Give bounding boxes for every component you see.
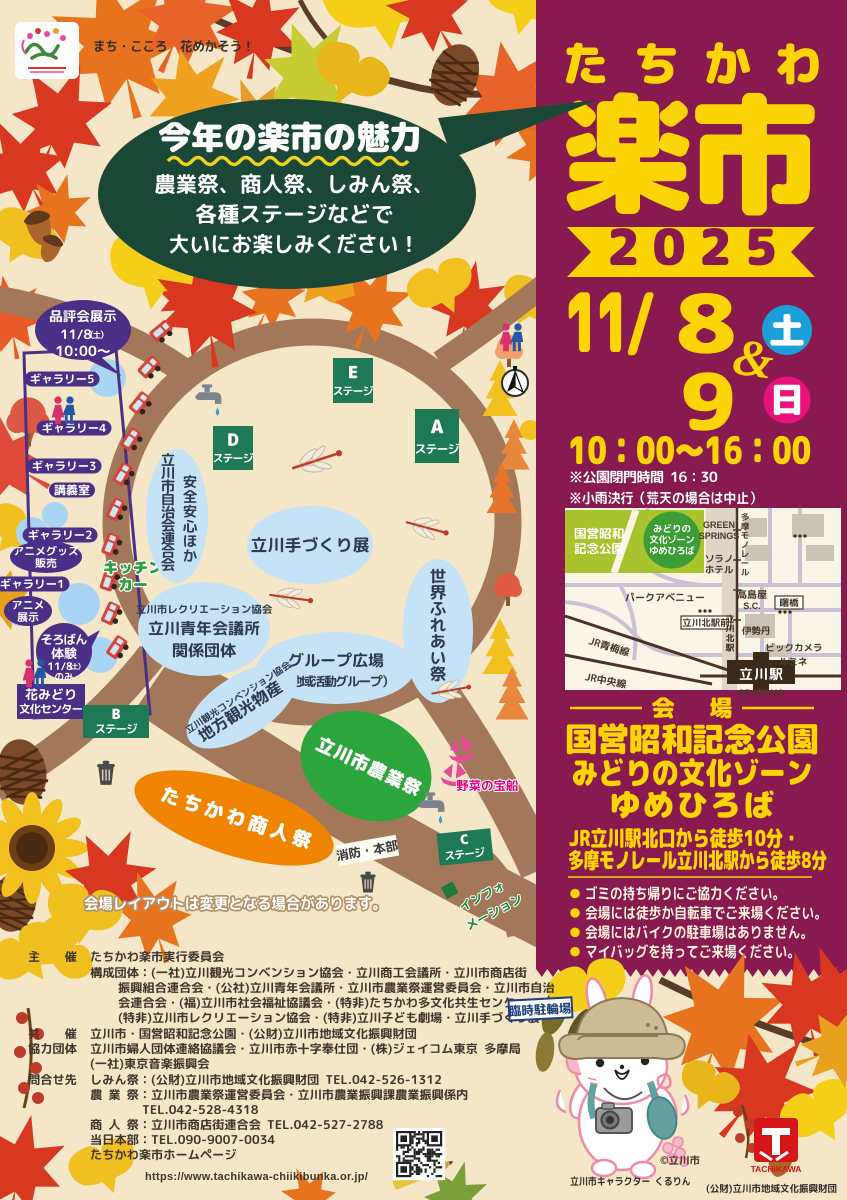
svg-text:&: & xyxy=(729,329,777,391)
svg-text:S.C.: S.C. xyxy=(743,601,761,611)
svg-text:GREEN: GREEN xyxy=(703,520,735,530)
svg-text:TACHIKAWA: TACHIKAWA xyxy=(751,1164,802,1174)
svg-text:https://www.tachikawa-chiikibu: https://www.tachikawa-chiikibunka.or.jp/ xyxy=(145,1171,368,1183)
svg-text:GRANDUO: GRANDUO xyxy=(738,688,785,698)
svg-text:SPRINGS: SPRINGS xyxy=(699,531,740,541)
